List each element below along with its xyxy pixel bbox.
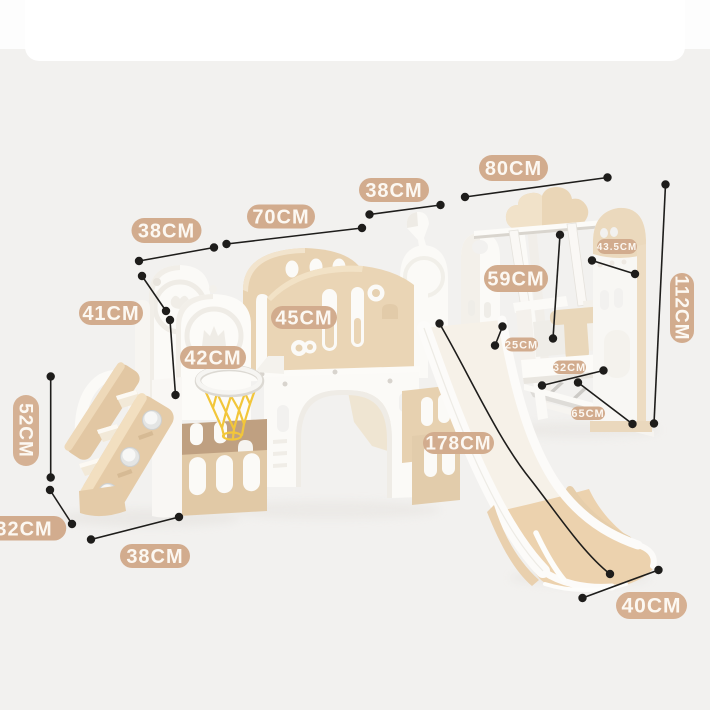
svg-text:52CM: 52CM bbox=[15, 403, 36, 458]
svg-text:45CM: 45CM bbox=[275, 308, 332, 330]
svg-text:70CM: 70CM bbox=[252, 207, 309, 229]
svg-text:65CM: 65CM bbox=[571, 408, 604, 420]
svg-text:38CM: 38CM bbox=[365, 180, 422, 202]
svg-text:112CM: 112CM bbox=[671, 275, 692, 340]
svg-text:42CM: 42CM bbox=[184, 348, 241, 370]
svg-text:38CM: 38CM bbox=[138, 221, 195, 243]
svg-text:38CM: 38CM bbox=[126, 546, 183, 568]
svg-text:59CM: 59CM bbox=[487, 269, 544, 291]
svg-text:40CM: 40CM bbox=[621, 595, 681, 618]
svg-text:41CM: 41CM bbox=[82, 303, 139, 325]
svg-text:80CM: 80CM bbox=[485, 158, 542, 180]
svg-text:25CM: 25CM bbox=[505, 340, 538, 352]
svg-text:43.5CM: 43.5CM bbox=[597, 242, 637, 253]
svg-text:32CM: 32CM bbox=[0, 519, 53, 541]
svg-text:32CM: 32CM bbox=[553, 362, 586, 374]
svg-text:178CM: 178CM bbox=[425, 434, 491, 455]
